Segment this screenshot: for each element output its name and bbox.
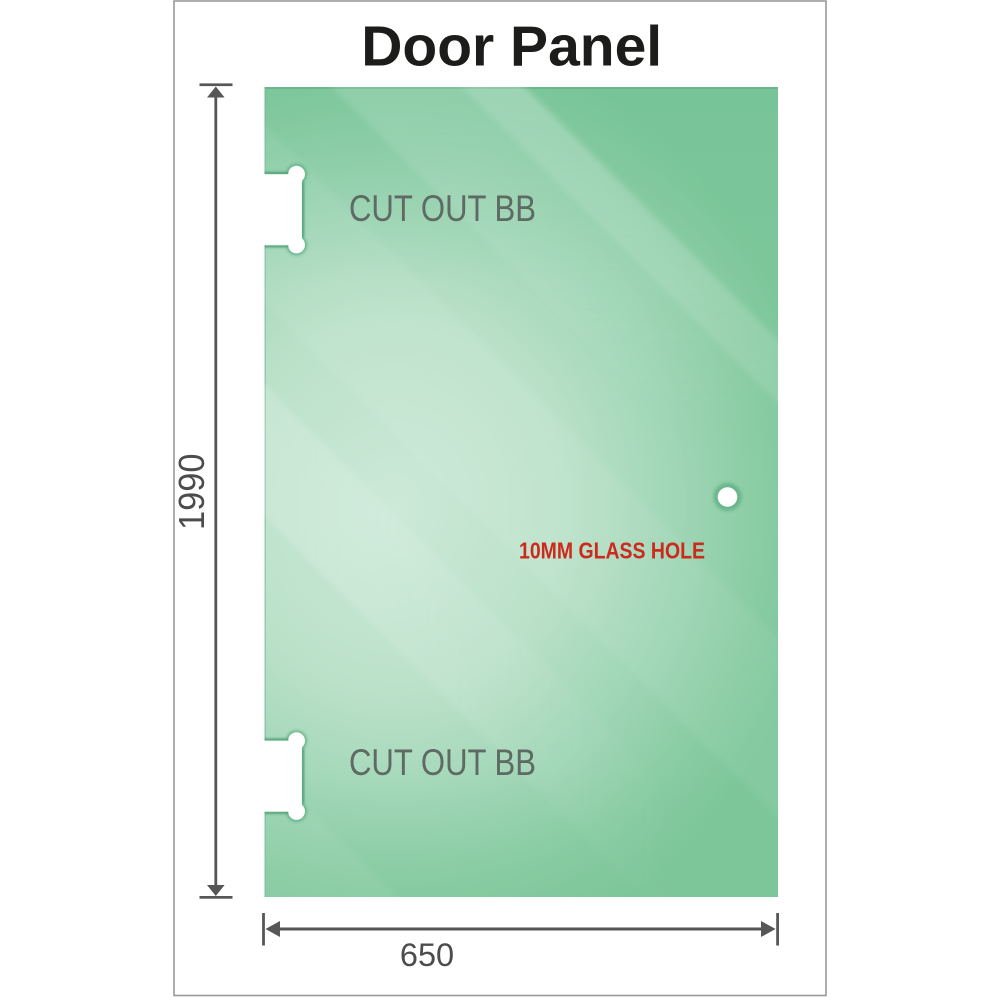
svg-text:CUT OUT BB: CUT OUT BB <box>349 741 536 783</box>
svg-text:650: 650 <box>400 937 454 973</box>
svg-text:Door Panel: Door Panel <box>361 15 662 79</box>
svg-text:10MM GLASS HOLE: 10MM GLASS HOLE <box>519 538 705 564</box>
svg-text:CUT OUT BB: CUT OUT BB <box>349 187 536 229</box>
svg-text:1990: 1990 <box>171 454 212 531</box>
